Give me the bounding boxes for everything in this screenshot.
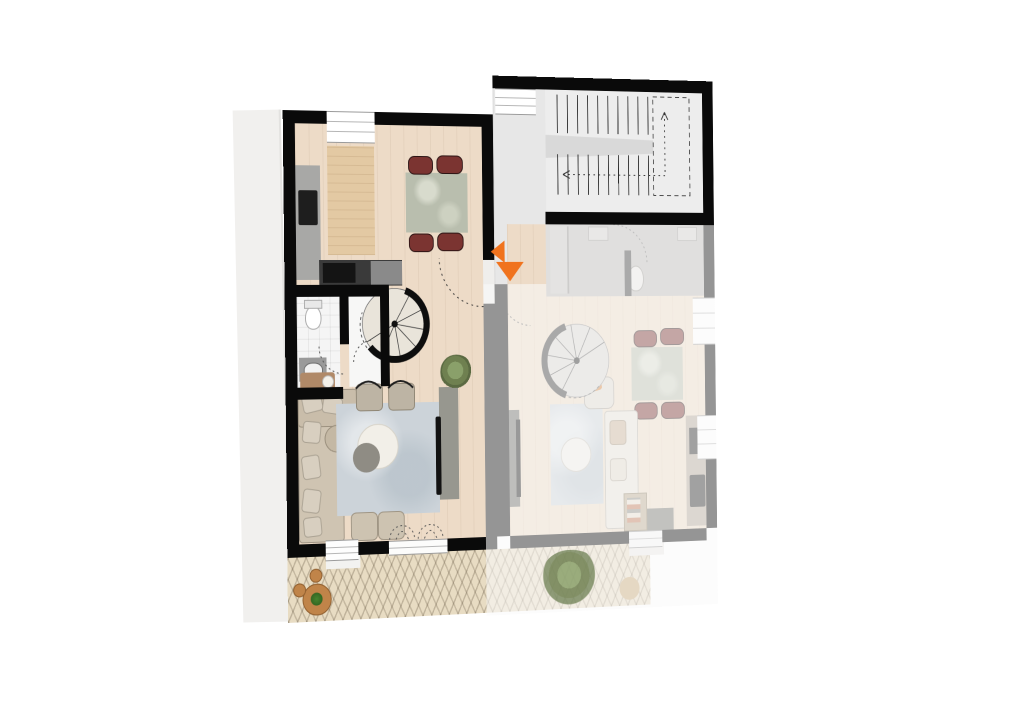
window [693, 298, 716, 345]
wall [545, 212, 714, 225]
patio-shrub [418, 524, 443, 539]
armchair-frame [388, 381, 413, 388]
window [495, 88, 536, 115]
wall [481, 114, 494, 260]
entrance-gap [483, 260, 495, 304]
spiral-staircase-right [544, 324, 609, 399]
glass-door [389, 539, 448, 556]
wall [380, 296, 390, 386]
wall [495, 284, 511, 536]
french-door [326, 539, 359, 561]
stair-landing-slab [545, 135, 653, 160]
window [697, 415, 716, 460]
corridor-door-arc [613, 225, 647, 263]
patio-shrub [390, 525, 415, 540]
terrace-door-right [629, 530, 662, 548]
armchair-frame [356, 381, 381, 388]
stair-landing-outline [653, 97, 690, 196]
wall [298, 387, 344, 400]
wall [702, 81, 714, 225]
wall [296, 285, 389, 297]
entrance-door-arc [439, 258, 483, 307]
floor-plan-canvas [0, 0, 1023, 723]
wall [339, 297, 349, 345]
spiral-staircase-left [360, 288, 427, 360]
floorplan [282, 70, 724, 655]
bathroom-door-arc [319, 346, 345, 374]
window [327, 111, 375, 144]
